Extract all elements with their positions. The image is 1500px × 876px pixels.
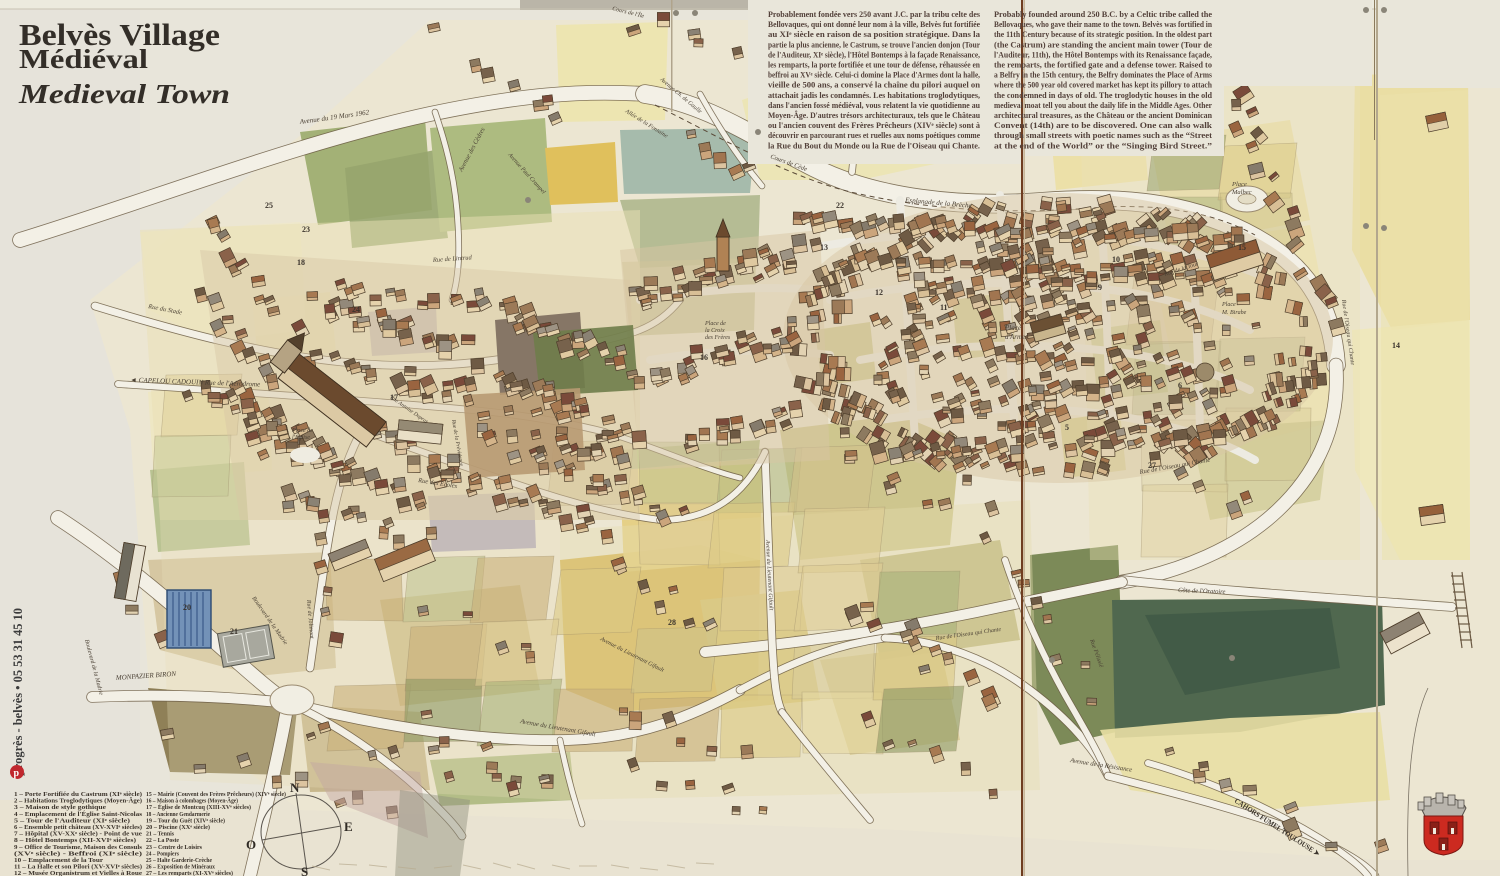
svg-text:la Rue du Bout du Monde ou la: la Rue du Bout du Monde ou la Rue de l'O… [768, 141, 980, 150]
svg-text:Place: Place [1221, 302, 1236, 308]
svg-text:10: 10 [1112, 255, 1120, 264]
svg-text:p: p [14, 768, 20, 779]
svg-text:l'Auditeur, 11th), the Hôtel B: l'Auditeur, 11th), the Hôtel Bontemps wi… [994, 50, 1212, 59]
svg-text:Probablement fondée vers 250 a: Probablement fondée vers 250 avant J.C. … [768, 10, 980, 19]
svg-text:13: 13 [820, 243, 828, 252]
svg-text:17: 17 [390, 393, 398, 402]
svg-text:medieval moat tell you about t: medieval moat tell you about the daily l… [994, 101, 1212, 110]
svg-text:the 11th Century because of it: the 11th Century because of its strategi… [994, 30, 1212, 39]
svg-text:M. Birabe: M. Birabe [1221, 310, 1247, 316]
svg-text:Medieval Town: Medieval Town [18, 79, 230, 109]
svg-text:at the end of the World” or th: at the end of the World” or the “Singing… [994, 141, 1212, 150]
svg-text:Place: Place [1231, 181, 1247, 188]
svg-text:de l'Auditeur, XIᵉ siècle), l': de l'Auditeur, XIᵉ siècle), l'Hôtel Bont… [768, 50, 980, 59]
svg-text:ou l'ancien couvent des Frères: ou l'ancien couvent des Frères Prêcheurs… [768, 121, 980, 130]
svg-text:27: 27 [1148, 461, 1156, 470]
svg-text:12 – Musée Organistrum et Viel: 12 – Musée Organistrum et Vielles à Roue [14, 870, 142, 876]
svg-text:N: N [290, 780, 300, 795]
svg-text:5: 5 [1065, 423, 1069, 432]
svg-text:partie la plus ancienne, le Ca: partie la plus ancienne, le Castrum, se … [768, 40, 980, 49]
svg-text:des Frères: des Frères [705, 335, 731, 341]
svg-text:O: O [246, 837, 256, 852]
svg-text:12: 12 [875, 288, 883, 297]
svg-text:Place: Place [1004, 324, 1021, 332]
svg-text:through small streets with poe: through small streets with poetic names … [994, 131, 1212, 140]
svg-text:18: 18 [297, 258, 305, 267]
svg-text:16: 16 [700, 353, 708, 362]
svg-text:21: 21 [230, 627, 238, 636]
svg-text:11: 11 [940, 303, 948, 312]
svg-text:l'Église: l'Église [292, 433, 310, 441]
svg-text:dans l'ancien fossé médiéval,: dans l'ancien fossé médiéval, vous relat… [768, 101, 980, 110]
svg-text:6: 6 [1178, 381, 1182, 390]
svg-text:découvrir en parcourant rues e: découvrir en parcourant rues et ruelles … [768, 131, 980, 140]
svg-text:Probably founded around 250 B.: Probably founded around 250 B.C. by a Ce… [994, 10, 1212, 19]
svg-text:Médiéval: Médiéval [19, 44, 149, 74]
svg-text:(the Castrum) are standing the: (the Castrum) are standing the ancient m… [994, 40, 1212, 49]
svg-text:beffroi au XVᵉ siècle. Celui-c: beffroi au XVᵉ siècle. Celui-ci domine l… [768, 71, 980, 80]
svg-text:a Belfry in the 15th century,: a Belfry in the 15th century, the Belfry… [994, 71, 1212, 80]
svg-text:Convent (14th) are to be disco: Convent (14th) are to be discovered. One… [994, 121, 1212, 130]
svg-text:Place de: Place de [704, 321, 726, 327]
svg-text:15: 15 [1238, 243, 1246, 252]
svg-text:23: 23 [302, 225, 310, 234]
svg-text:progrès - belvès • 05 53 31 45: progrès - belvès • 05 53 31 45 10 [10, 608, 25, 776]
svg-text:Bellovaques, qui ont donné leu: Bellovaques, qui ont donné leur nom à la… [768, 20, 980, 29]
svg-text:Bellovaques, who gave their na: Bellovaques, who gave their name to the … [994, 20, 1212, 29]
svg-text:Place de: Place de [291, 428, 313, 434]
svg-text:attachait jadis les condamnés.: attachait jadis les condamnés. Les habit… [768, 91, 980, 100]
svg-text:25: 25 [265, 201, 273, 210]
svg-text:27 – Les remparts (XI-XVᵉ sièc: 27 – Les remparts (XI-XVᵉ siècles) [146, 870, 233, 876]
svg-text:28: 28 [668, 618, 676, 627]
svg-text:d'Armes: d'Armes [1005, 333, 1028, 341]
svg-text:24: 24 [352, 305, 360, 314]
svg-text:Malbec: Malbec [1231, 189, 1252, 196]
svg-text:au XIᵉ siècle en raison de sa: au XIᵉ siècle en raison de sa position s… [768, 30, 980, 39]
svg-text:the condemned in days of old.: the condemned in days of old. The troglo… [994, 91, 1212, 100]
svg-text:9: 9 [1098, 283, 1102, 292]
svg-text:les remparts, la porte fortifi: les remparts, la porte fortifiée et une … [768, 61, 980, 70]
svg-text:Moyen-Âge. D'autres trésors ar: Moyen-Âge. D'autres trésors architectura… [768, 110, 980, 120]
svg-text:la Croix: la Croix [705, 328, 725, 334]
svg-text:20: 20 [183, 603, 191, 612]
svg-text:S: S [301, 864, 308, 876]
svg-text:E: E [344, 819, 353, 834]
svg-text:22: 22 [836, 201, 844, 210]
svg-text:architectural treasures, as th: architectural treasures, as the Château … [994, 111, 1212, 120]
svg-text:vieille de 500 ans, a conservé: vieille de 500 ans, a conservé la chaîne… [768, 81, 980, 90]
svg-text:14: 14 [1392, 341, 1400, 350]
svg-text:where the 500 year old covered: where the 500 year old covered market ha… [994, 81, 1212, 90]
svg-text:the remparts, the fortified ga: the remparts, the fortified gate and a d… [994, 61, 1212, 70]
